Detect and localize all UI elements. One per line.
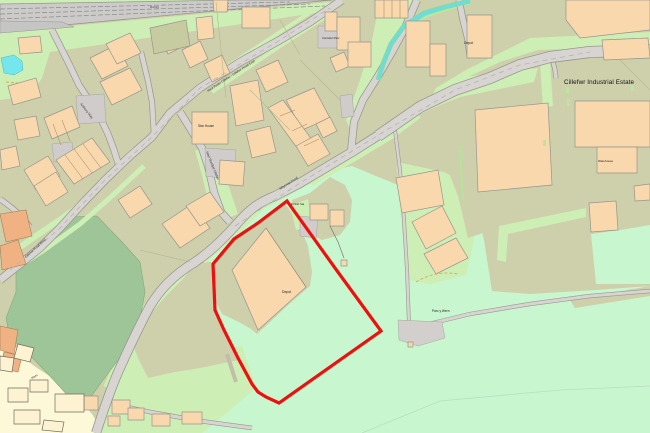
svg-text:El Sub Sta: El Sub Sta <box>291 202 305 206</box>
svg-text:Warehouse: Warehouse <box>598 159 614 163</box>
svg-text:Parc y Wern: Parc y Wern <box>432 309 450 313</box>
svg-text:Cillefwr Industrial Estate: Cillefwr Industrial Estate <box>564 79 635 86</box>
svg-text:Cwmdwr Parc: Cwmdwr Parc <box>322 36 340 40</box>
svg-text:Depot: Depot <box>282 290 291 294</box>
svg-text:Depot: Depot <box>464 41 473 45</box>
svg-text:Star House: Star House <box>198 124 214 128</box>
svg-text:Mwrwg: Mwrwg <box>150 5 159 9</box>
